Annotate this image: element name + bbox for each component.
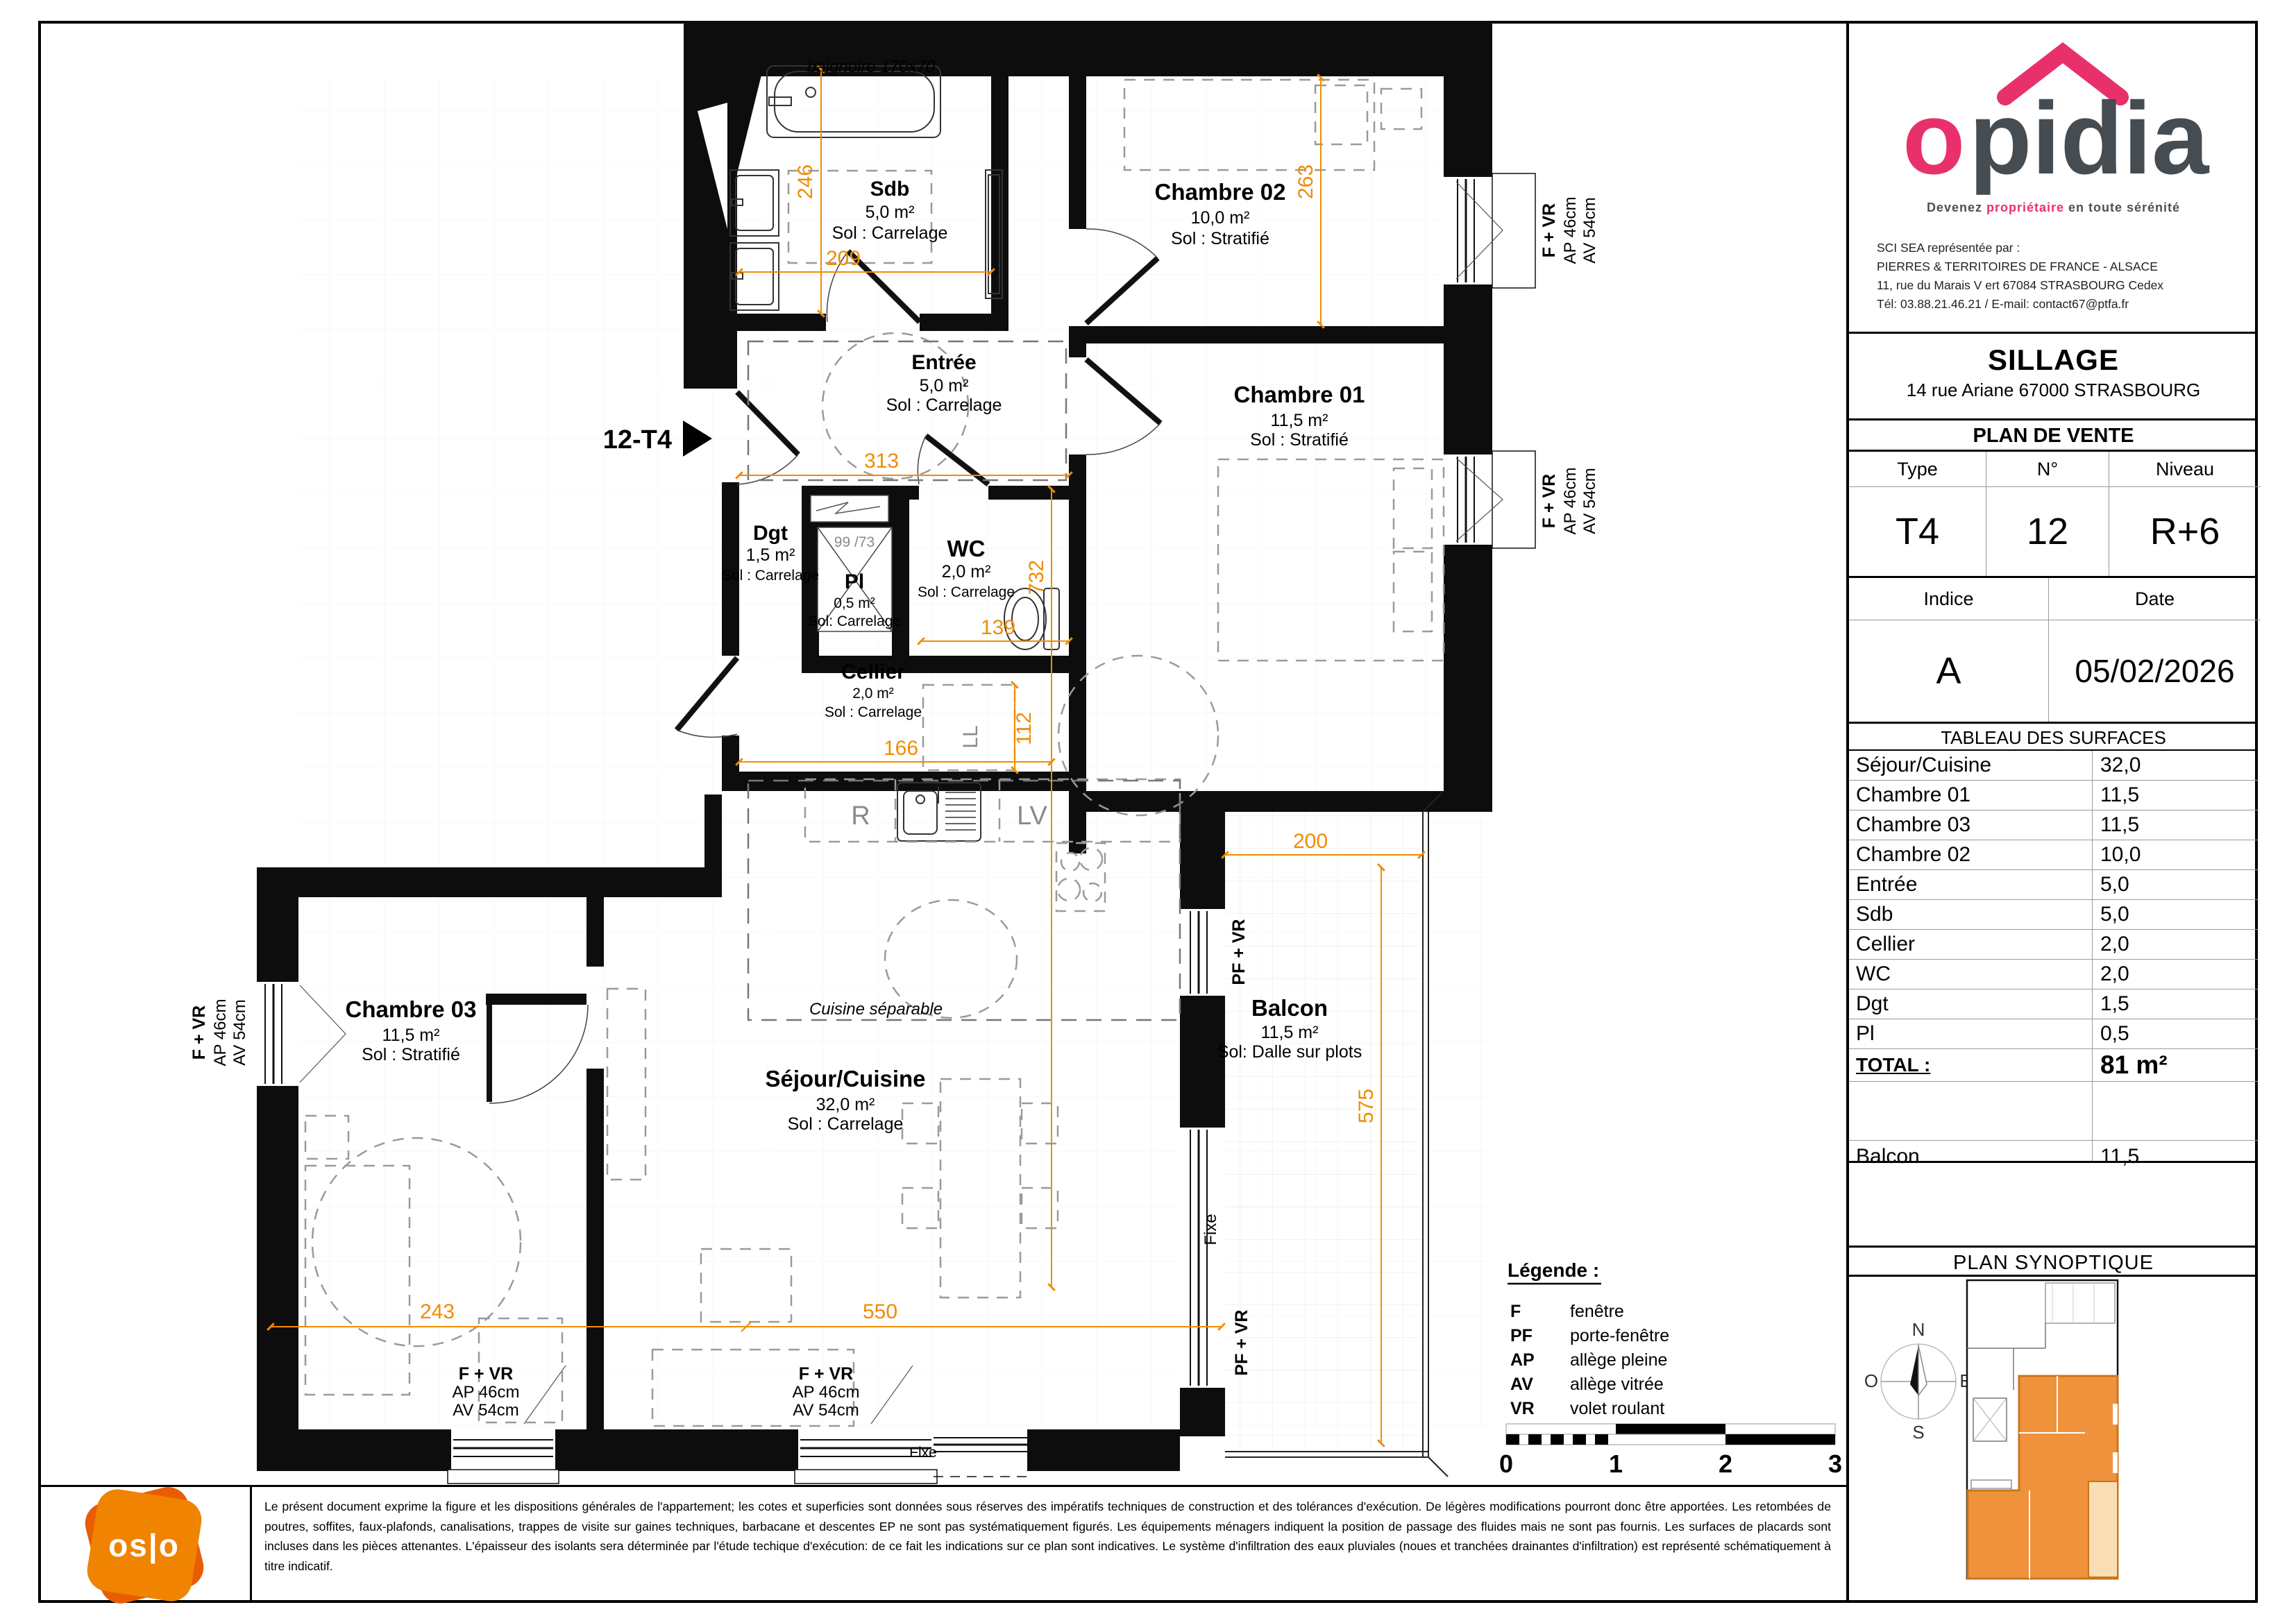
row-value: 5,0 xyxy=(2100,870,2129,899)
logo-text: pidia xyxy=(1969,81,2210,196)
win-bay-pf-label: PF + VR xyxy=(1232,1309,1251,1375)
legend-abbr: AP xyxy=(1510,1350,1535,1370)
dim-cellier-w: 166 xyxy=(884,737,918,760)
disclaimer-text: Le présent document exprime la figure et… xyxy=(252,1487,1846,1603)
footer-band: os|o Le présent document exprime la figu… xyxy=(38,1485,1846,1603)
dishwasher-label: LV xyxy=(1017,801,1047,831)
balcony-value: 11,5 xyxy=(2100,1141,2139,1173)
row-value: 2,0 xyxy=(2100,960,2129,989)
contact-line: SCI SEA représentée par : xyxy=(1877,239,2258,257)
room-ch02-area: 10,0 m² xyxy=(1191,208,1250,228)
win-ch02-ap: AP 46cm xyxy=(1561,197,1580,264)
contact-line: Tél: 03.88.21.46.21 / E-mail: contact67@… xyxy=(1877,295,2258,314)
table-row: Chambre 0111,5 xyxy=(1849,781,2258,810)
win-ch01-ap: AP 46cm xyxy=(1561,468,1580,535)
title-block-panel: o pidia Devenez propriétaire en toute sé… xyxy=(1846,21,2258,1603)
win-fixed-label: Fixe xyxy=(909,1445,937,1461)
compass-s: S xyxy=(1912,1422,1924,1443)
table-spacer xyxy=(1849,1082,2258,1140)
room-sdb-floor: Sol : Carrelage xyxy=(832,223,948,243)
room-dgt: Dgt xyxy=(753,522,788,545)
room-cellier-floor: Sol : Carrelage xyxy=(825,704,922,720)
room-sejour: Séjour/Cuisine xyxy=(765,1066,925,1091)
index-header: Indice xyxy=(1849,578,2049,620)
room-pl: Pl xyxy=(845,570,864,593)
project-address: 14 rue Ariane 67000 STRASBOURG xyxy=(1849,380,2258,401)
dim-ch02-h: 263 xyxy=(1294,164,1317,199)
win-ch01-av: AV 54cm xyxy=(1580,468,1599,534)
win-ch02-f: F + VR xyxy=(1539,203,1559,258)
win-bay-fixe-label: Fixe xyxy=(1201,1214,1220,1245)
dim-sdb-h: 246 xyxy=(794,164,817,199)
total-label: TOTAL : xyxy=(1856,1049,1930,1081)
num-value: 12 xyxy=(1986,487,2109,576)
project-name: SILLAGE xyxy=(1849,343,2258,377)
room-entree-area: 5,0 m² xyxy=(920,376,969,396)
room-ch01: Chambre 01 xyxy=(1234,382,1365,407)
room-entree-floor: Sol : Carrelage xyxy=(886,396,1002,415)
balcony-label: Balcon xyxy=(1856,1141,1920,1173)
row-value: 11,5 xyxy=(2100,810,2139,840)
row-value: 10,0 xyxy=(2100,840,2141,869)
win-ch03-av: AV 54cm xyxy=(230,999,249,1066)
table-row: Dgt1,5 xyxy=(1849,989,2258,1019)
level-value: R+6 xyxy=(2109,487,2261,576)
room-ch03: Chambre 03 xyxy=(346,996,477,1022)
compass-o: O xyxy=(1864,1370,1878,1391)
compass-icon: N S O E xyxy=(1864,1319,1972,1443)
row-name: Chambre 01 xyxy=(1856,781,1970,810)
dim-balcon-h: 575 xyxy=(1355,1089,1378,1123)
date-header: Date xyxy=(2049,578,2261,620)
row-value: 11,5 xyxy=(2100,781,2139,810)
room-ch01-area: 11,5 m² xyxy=(1271,411,1328,430)
legend-label: allège vitrée xyxy=(1570,1375,1664,1394)
table-row: Pl0,5 xyxy=(1849,1019,2258,1049)
synoptic-plan: N S O E xyxy=(1849,1279,2258,1603)
legend-abbr: AV xyxy=(1510,1375,1533,1394)
type-num-level-table: Type N° Niveau T4 12 R+6 xyxy=(1849,450,2258,576)
scale-tick: 0 xyxy=(1499,1450,1513,1478)
scale-bar: 0 1 2 3 xyxy=(1499,1424,1842,1478)
table-row: Chambre 0311,5 xyxy=(1849,810,2258,840)
opidia-logo: o pidia xyxy=(1894,42,2213,201)
dim-col-h: 732 xyxy=(1025,560,1048,595)
window-ch02 xyxy=(1444,173,1535,288)
legend: Légende : Ffenêtre PFporte-fenêtre APall… xyxy=(1508,1259,1669,1418)
win-ch03b-av: AV 54cm xyxy=(453,1401,519,1420)
row-value: 5,0 xyxy=(2100,900,2129,929)
room-entree: Entrée xyxy=(911,351,976,374)
floor-plan: 12-T4 246 209 263 313 732 139 166 112 xyxy=(38,21,1846,1485)
win-sejour-f: F + VR xyxy=(799,1364,854,1384)
contact-line: 11, rue du Marais V ert 67084 STRASBOURG… xyxy=(1877,276,2258,295)
row-name: Séjour/Cuisine xyxy=(1856,751,1991,780)
brand-tagline: Devenez propriétaire en toute sérénité xyxy=(1849,201,2258,215)
table-row: Sdb5,0 xyxy=(1849,900,2258,930)
dim-balcon-w: 200 xyxy=(1293,830,1328,853)
index-value: A xyxy=(1849,620,2049,722)
win-sejour-av: AV 54cm xyxy=(793,1401,859,1420)
legend-abbr: VR xyxy=(1510,1399,1535,1418)
room-wc: WC xyxy=(947,536,986,561)
room-balcon: Balcon xyxy=(1251,995,1328,1021)
win-balcony-door-label: PF + VR xyxy=(1229,919,1249,985)
dim-wc-w: 139 xyxy=(981,616,1015,639)
win-ch02-av: AV 54cm xyxy=(1580,197,1599,264)
room-sejour-area: 32,0 m² xyxy=(816,1095,875,1114)
room-wc-area: 2,0 m² xyxy=(942,562,991,581)
surfaces-title: TABLEAU DES SURFACES xyxy=(1849,722,2258,749)
legend-label: allège pleine xyxy=(1570,1350,1667,1370)
win-ch03b-ap: AP 46cm xyxy=(453,1383,520,1402)
scale-tick: 2 xyxy=(1719,1450,1732,1478)
legend-label: fenêtre xyxy=(1570,1302,1624,1321)
type-header: Type xyxy=(1849,452,1986,487)
row-value: 1,5 xyxy=(2100,989,2129,1019)
row-value: 32,0 xyxy=(2100,751,2141,780)
room-pl-floor: Sol: Carrelage xyxy=(808,613,901,629)
table-row: WC2,0 xyxy=(1849,960,2258,989)
oslo-logo: os|o xyxy=(92,1494,197,1597)
row-name: WC xyxy=(1856,960,1891,989)
window-fixed-bottom xyxy=(934,1438,1027,1477)
table-row: Cellier2,0 xyxy=(1849,930,2258,960)
brand-block: o pidia Devenez propriétaire en toute sé… xyxy=(1849,21,2258,332)
dim-sejour-w: 550 xyxy=(863,1300,897,1323)
plan-de-vente-page: 12-T4 246 209 263 313 732 139 166 112 xyxy=(0,0,2296,1623)
room-sejour-floor: Sol : Carrelage xyxy=(788,1114,904,1134)
table-row: Entrée5,0 xyxy=(1849,870,2258,900)
row-name: Chambre 02 xyxy=(1856,840,1970,869)
surfaces-table: Séjour/Cuisine32,0 Chambre 0111,5 Chambr… xyxy=(1849,749,2258,1163)
doc-title: PLAN DE VENTE xyxy=(1849,418,2258,450)
room-balcon-floor: Sol: Dalle sur plots xyxy=(1217,1042,1362,1062)
brand-contact: SCI SEA représentée par : PIERRES & TERR… xyxy=(1849,239,2258,314)
table-row: Chambre 0210,0 xyxy=(1849,840,2258,870)
num-header: N° xyxy=(1986,452,2109,487)
win-ch03-ap: AP 46cm xyxy=(211,999,230,1067)
level-header: Niveau xyxy=(2109,452,2261,487)
compass-n: N xyxy=(1912,1319,1925,1340)
project-block: SILLAGE 14 rue Ariane 67000 STRASBOURG xyxy=(1849,332,2258,418)
unit-marker-label: 12-T4 xyxy=(603,425,672,454)
room-dgt-floor: Sol : Carrelage xyxy=(722,568,819,584)
fridge-label: R xyxy=(851,801,870,831)
win-ch03-f: F + VR xyxy=(189,1005,209,1060)
room-cellier-area: 2,0 m² xyxy=(852,686,894,702)
total-row: TOTAL :81 m² xyxy=(1849,1049,2258,1082)
washer-label: LL xyxy=(959,725,982,748)
room-pl-area: 0,5 m² xyxy=(834,595,875,611)
window-ch01 xyxy=(1444,451,1535,548)
legend-label: volet roulant xyxy=(1570,1399,1664,1418)
row-name: Cellier xyxy=(1856,930,1915,959)
radiator-icon xyxy=(811,495,888,522)
oslo-logo-box: os|o xyxy=(38,1487,252,1603)
room-balcon-area: 11,5 m² xyxy=(1261,1023,1319,1042)
room-ch02: Chambre 02 xyxy=(1155,179,1286,205)
dim-ch03-w: 243 xyxy=(420,1300,455,1323)
win-ch03b-f: F + VR xyxy=(459,1364,514,1384)
legend-abbr: PF xyxy=(1510,1326,1533,1345)
room-sdb: Sdb xyxy=(870,178,910,201)
closet-size-label: 99 /73 xyxy=(834,534,875,550)
row-name: Sdb xyxy=(1856,900,1893,929)
balcony-row: Balcon11,5 xyxy=(1849,1140,2258,1173)
room-ch02-floor: Sol : Stratifié xyxy=(1171,229,1269,248)
oslo-logo-text: os|o xyxy=(92,1494,197,1597)
window-balcony-bay xyxy=(1180,1128,1225,1388)
row-name: Pl xyxy=(1856,1019,1875,1048)
legend-title: Légende : xyxy=(1508,1259,1599,1281)
window-balcony-door xyxy=(1180,909,1225,996)
row-value: 2,0 xyxy=(2100,930,2129,959)
legend-label: porte-fenêtre xyxy=(1570,1326,1669,1345)
total-value: 81 m² xyxy=(2100,1049,2168,1081)
synoptic-building xyxy=(1967,1280,2118,1579)
row-name: Dgt xyxy=(1856,989,1889,1019)
cuisine-separable-label: Cuisine séparable xyxy=(809,1000,943,1019)
dim-sdb-w: 209 xyxy=(826,247,861,270)
room-sdb-area: 5,0 m² xyxy=(866,203,915,222)
room-ch03-area: 11,5 m² xyxy=(382,1026,440,1045)
room-ch01-floor: Sol : Stratifié xyxy=(1250,430,1349,450)
room-wc-floor: Sol : Carrelage xyxy=(918,584,1015,600)
balcony-tiles xyxy=(1225,812,1421,1452)
contact-line: PIERRES & TERRITOIRES DE FRANCE - ALSACE xyxy=(1877,257,2258,276)
row-name: Chambre 03 xyxy=(1856,810,1970,840)
synoptic-title: PLAN SYNOPTIQUE xyxy=(1849,1246,2258,1277)
type-value: T4 xyxy=(1849,487,1986,576)
win-ch01-f: F + VR xyxy=(1539,474,1559,529)
scale-tick: 3 xyxy=(1828,1450,1842,1478)
highlighted-balcony xyxy=(2088,1481,2118,1577)
room-cellier: Cellier xyxy=(841,661,905,683)
scale-tick: 1 xyxy=(1609,1450,1623,1478)
room-dgt-area: 1,5 m² xyxy=(746,545,795,565)
dim-entree-w: 313 xyxy=(864,450,899,473)
win-sejour-ap: AP 46cm xyxy=(793,1383,860,1402)
row-name: Entrée xyxy=(1856,870,1917,899)
dim-ll-w: 112 xyxy=(1013,712,1036,745)
row-value: 0,5 xyxy=(2100,1019,2129,1048)
room-ch03-floor: Sol : Stratifié xyxy=(362,1045,460,1064)
index-date-table: Indice Date A 05/02/2026 xyxy=(1849,576,2258,722)
table-row: Séjour/Cuisine32,0 xyxy=(1849,751,2258,781)
logo-text-o: o xyxy=(1902,81,1965,196)
bath-label: baignoire 170x70 xyxy=(807,58,936,76)
date-value: 05/02/2026 xyxy=(2049,620,2261,722)
legend-abbr: F xyxy=(1510,1302,1521,1321)
